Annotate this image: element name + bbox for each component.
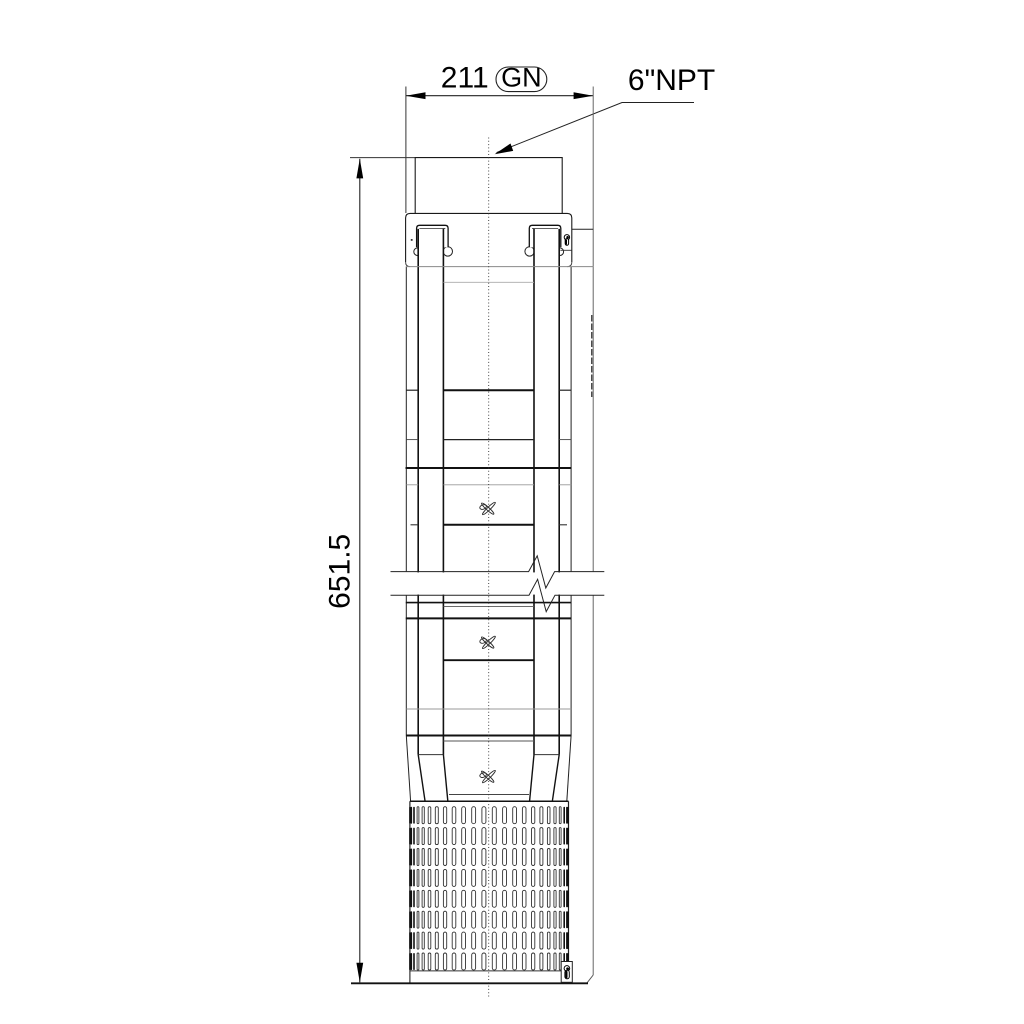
- svg-text:6"NPT: 6"NPT: [628, 64, 715, 97]
- svg-text:651.5: 651.5: [324, 534, 357, 609]
- svg-text:GN: GN: [501, 63, 542, 93]
- svg-text:211: 211: [441, 61, 489, 94]
